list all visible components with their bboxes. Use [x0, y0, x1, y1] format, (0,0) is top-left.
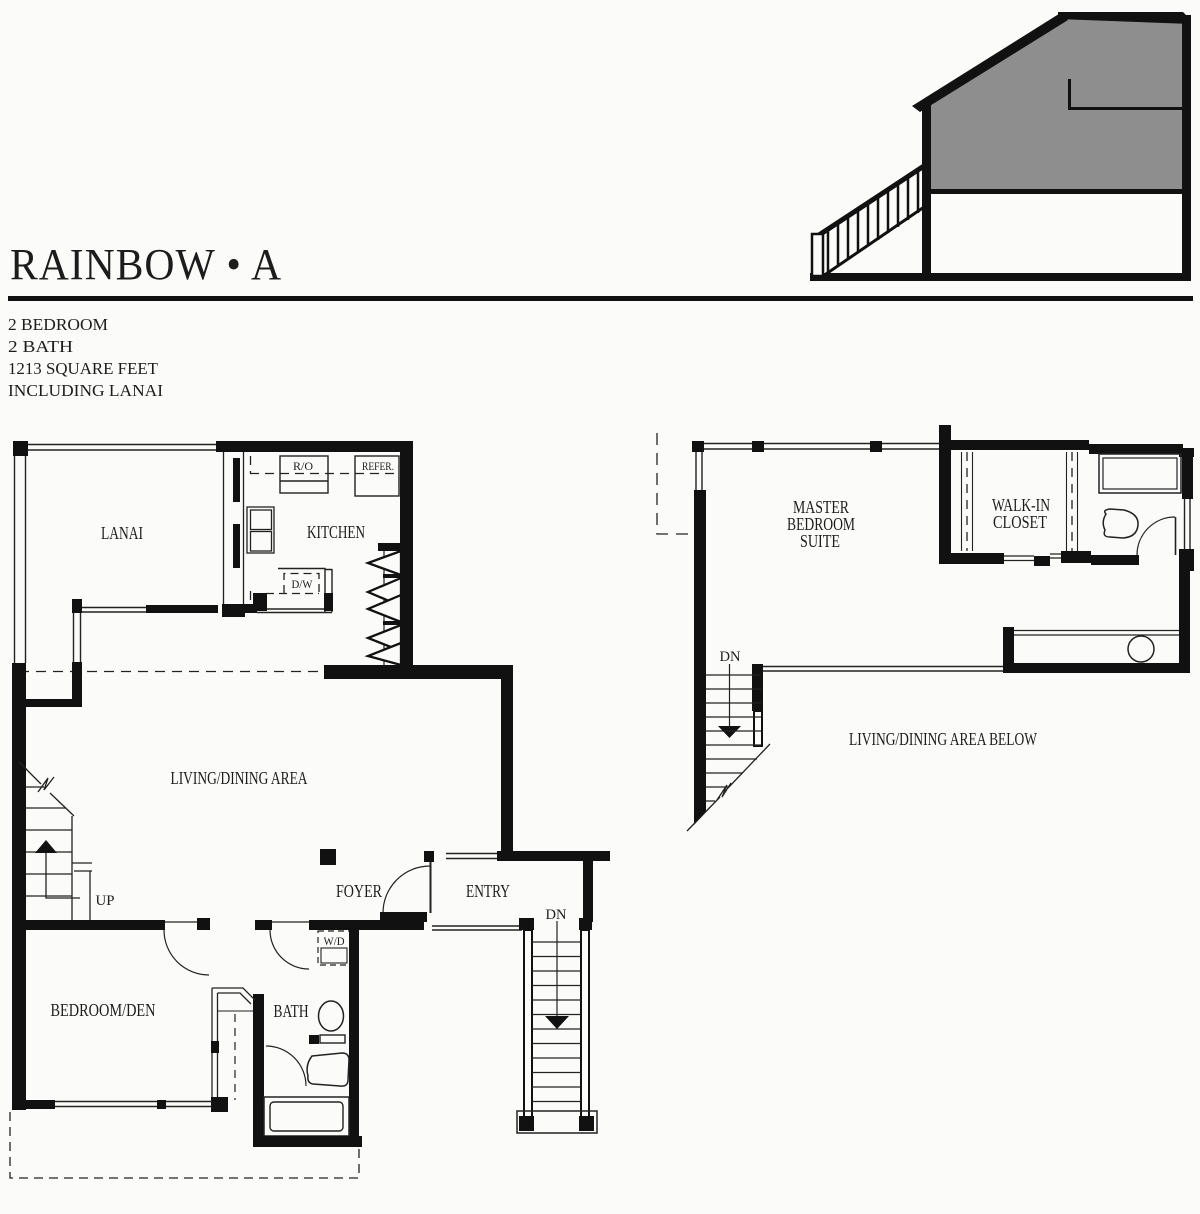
svg-text:W/D: W/D	[324, 934, 345, 948]
svg-text:DN: DN	[546, 907, 567, 923]
svg-text:UP: UP	[96, 893, 115, 909]
svg-text:ENTRY: ENTRY	[466, 881, 510, 901]
svg-text:SUITE: SUITE	[800, 531, 840, 551]
svg-text:LIVING/DINING AREA: LIVING/DINING AREA	[171, 768, 308, 788]
svg-text:CLOSET: CLOSET	[993, 512, 1047, 532]
svg-text:REFER.: REFER.	[362, 459, 394, 473]
svg-text:2 BATH: 2 BATH	[8, 337, 73, 356]
svg-text:R/O: R/O	[293, 459, 313, 473]
svg-text:D/W: D/W	[292, 577, 314, 591]
svg-text:RAINBOW • A: RAINBOW • A	[10, 240, 282, 289]
svg-text:INCLUDING LANAI: INCLUDING LANAI	[8, 381, 163, 400]
svg-text:BATH: BATH	[274, 1001, 309, 1021]
svg-text:KITCHEN: KITCHEN	[307, 522, 365, 542]
svg-text:BEDROOM/DEN: BEDROOM/DEN	[51, 1000, 156, 1020]
svg-text:LANAI: LANAI	[101, 523, 143, 543]
svg-text:2 BEDROOM: 2 BEDROOM	[8, 315, 108, 334]
svg-text:LIVING/DINING AREA BELOW: LIVING/DINING AREA BELOW	[849, 729, 1037, 749]
svg-text:DN: DN	[720, 649, 741, 665]
svg-text:1213 SQUARE FEET: 1213 SQUARE FEET	[8, 359, 159, 378]
svg-text:FOYER: FOYER	[336, 881, 382, 901]
